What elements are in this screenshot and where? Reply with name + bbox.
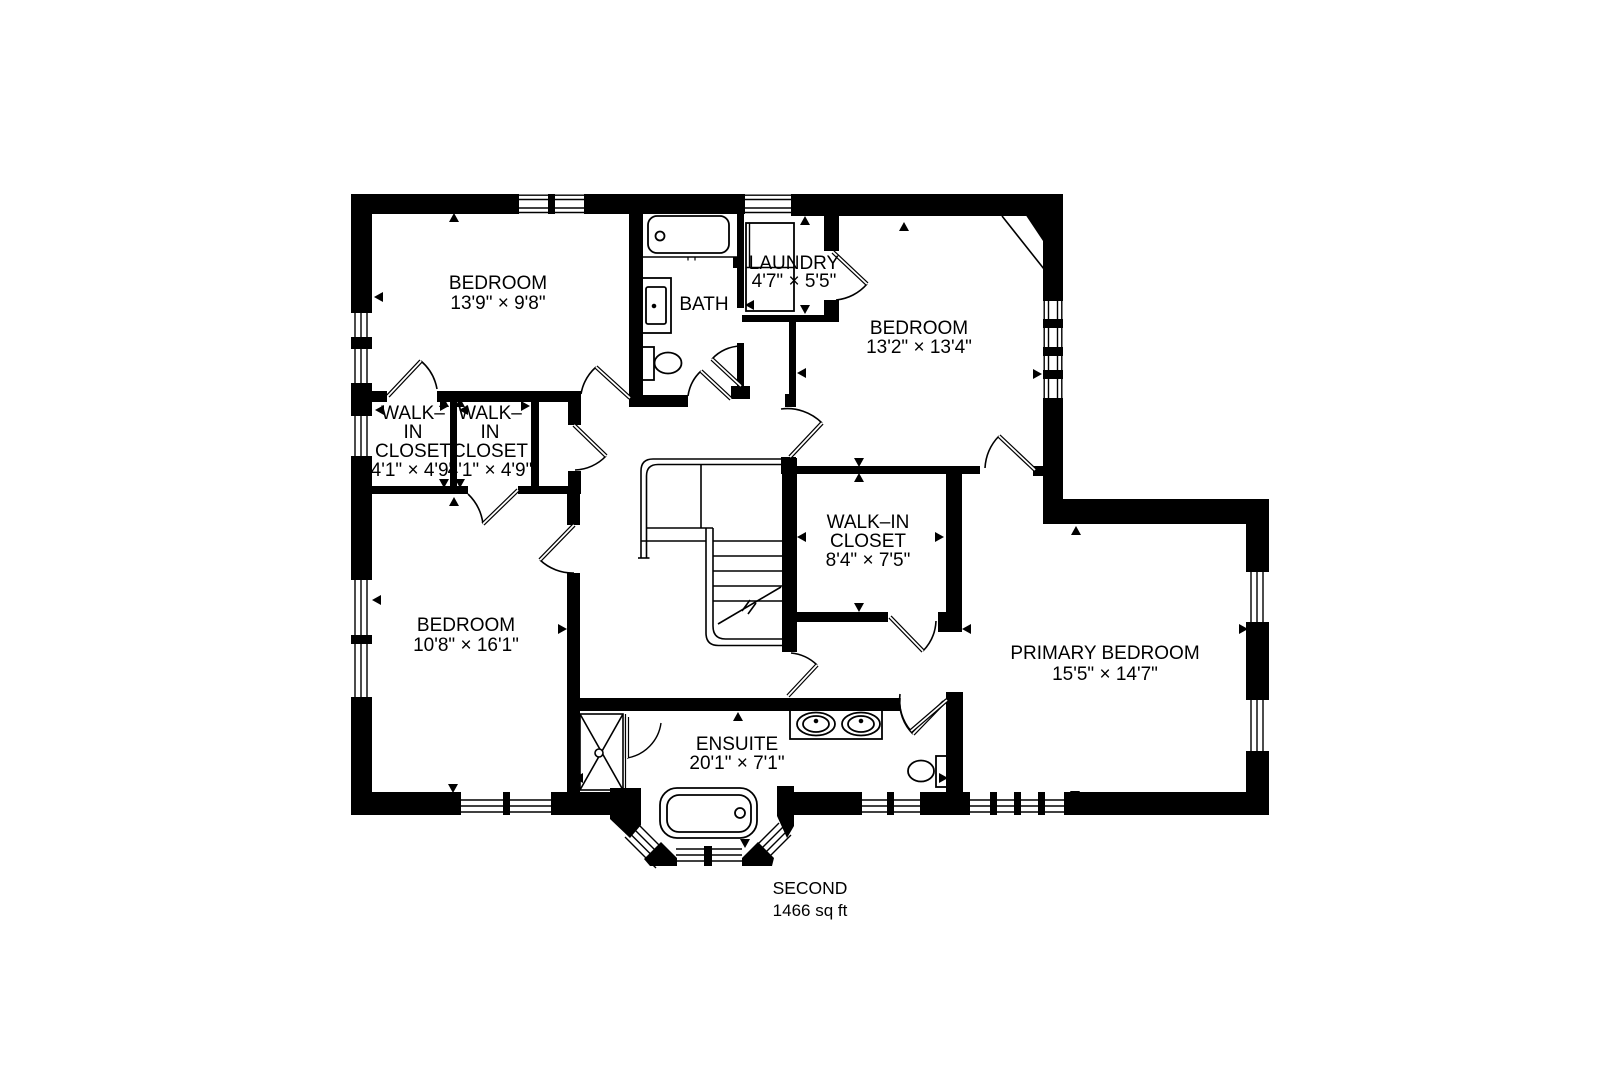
svg-text:20'1" × 7'1": 20'1" × 7'1"	[689, 753, 784, 774]
svg-text:IN: IN	[481, 422, 500, 443]
svg-text:10'8" × 16'1": 10'8" × 16'1"	[413, 635, 519, 656]
svg-text:PRIMARY BEDROOM: PRIMARY BEDROOM	[1010, 643, 1199, 664]
svg-text:4'1" × 4'9": 4'1" × 4'9"	[371, 460, 456, 481]
svg-text:WALK–: WALK–	[381, 403, 445, 424]
svg-text:BEDROOM: BEDROOM	[417, 615, 515, 636]
svg-text:IN: IN	[404, 422, 423, 443]
svg-text:8'4" × 7'5": 8'4" × 7'5"	[826, 550, 911, 571]
svg-text:13'2" × 13'4": 13'2" × 13'4"	[866, 337, 972, 358]
svg-text:CLOSET: CLOSET	[452, 441, 528, 462]
svg-text:BATH: BATH	[679, 294, 728, 315]
svg-text:SECOND: SECOND	[773, 878, 848, 898]
svg-text:13'9" × 9'8": 13'9" × 9'8"	[450, 293, 545, 314]
svg-text:CLOSET: CLOSET	[830, 531, 906, 552]
svg-text:BEDROOM: BEDROOM	[449, 273, 547, 294]
svg-text:CLOSET: CLOSET	[375, 441, 451, 462]
svg-text:WALK–IN: WALK–IN	[827, 512, 910, 533]
svg-text:4'1" × 4'9": 4'1" × 4'9"	[448, 460, 533, 481]
svg-text:1466 sq ft: 1466 sq ft	[773, 901, 848, 920]
svg-text:BEDROOM: BEDROOM	[870, 318, 968, 339]
svg-text:ENSUITE: ENSUITE	[696, 734, 778, 755]
svg-text:4'7" × 5'5": 4'7" × 5'5"	[752, 271, 837, 292]
svg-text:15'5" × 14'7": 15'5" × 14'7"	[1052, 664, 1158, 685]
